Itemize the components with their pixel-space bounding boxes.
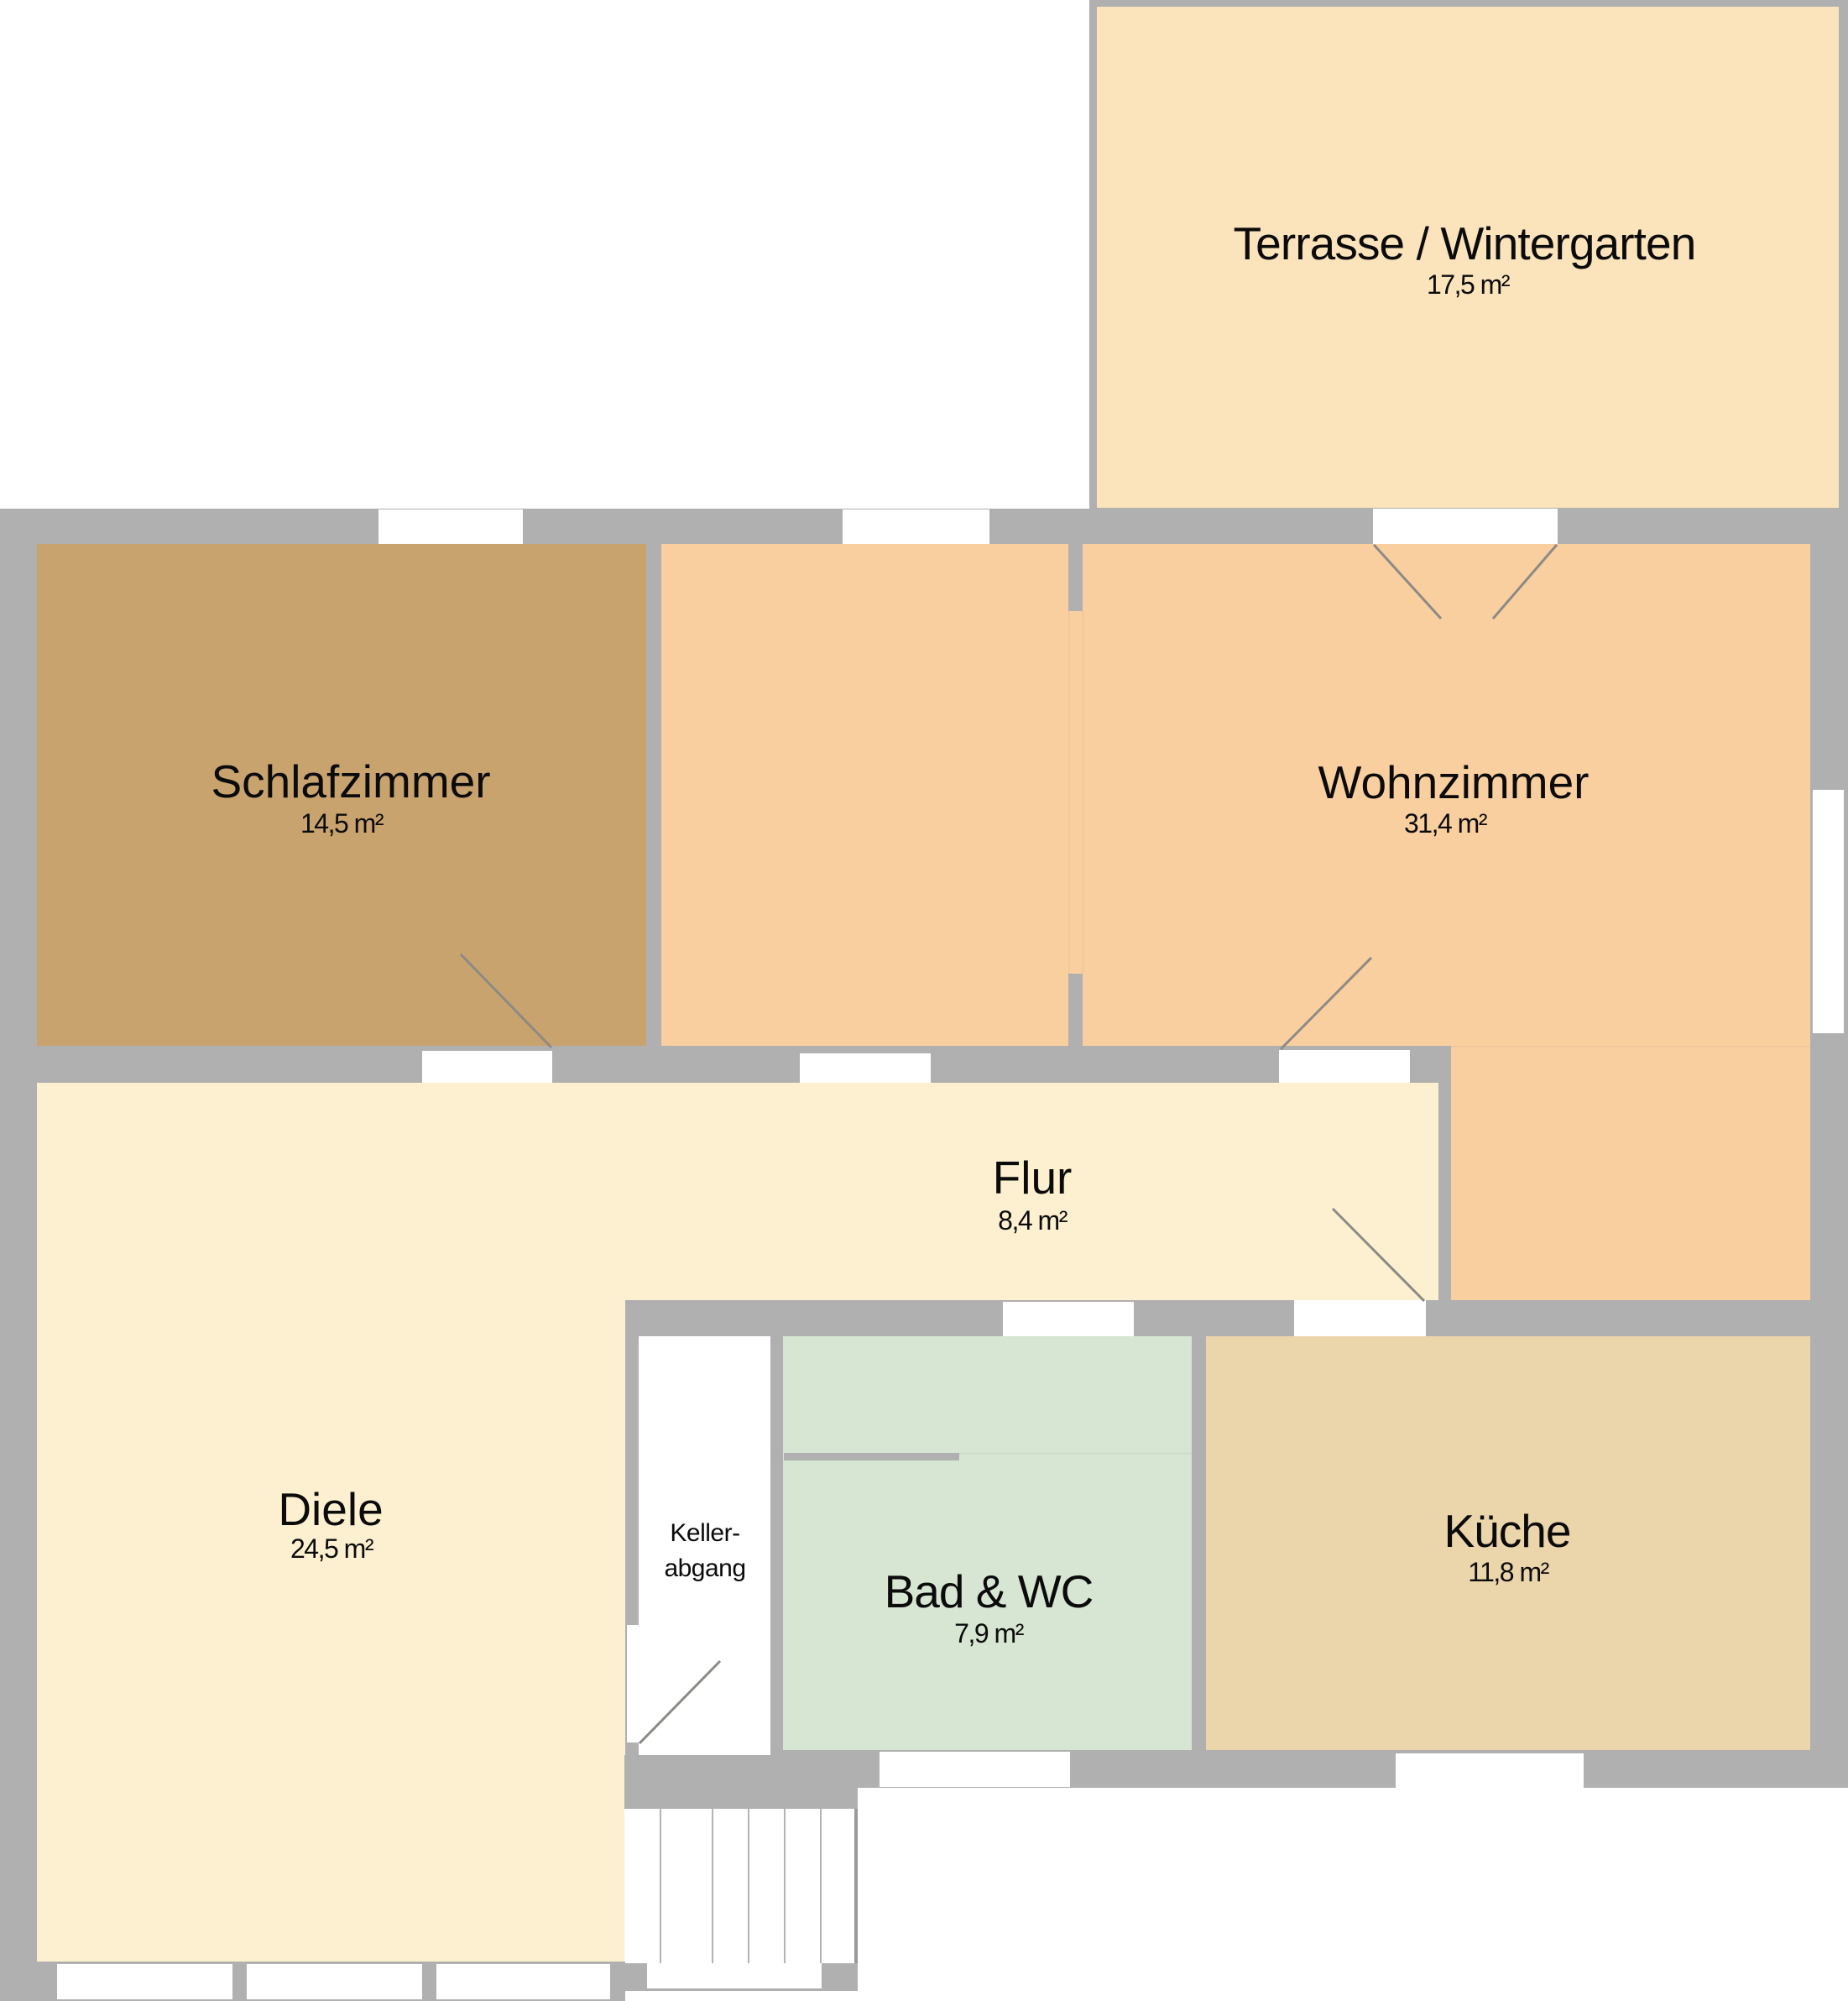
svg-text:24,5 m²: 24,5 m² [290,1533,374,1564]
svg-text:Diele: Diele [278,1483,383,1535]
svg-text:14,5 m²: 14,5 m² [300,808,384,839]
svg-text:7,9 m²: 7,9 m² [954,1618,1025,1648]
svg-text:Flur: Flur [993,1152,1073,1204]
svg-text:Schlafzimmer: Schlafzimmer [211,755,490,807]
svg-text:Keller-: Keller- [670,1519,739,1547]
svg-text:31,4 m²: 31,4 m² [1404,808,1488,839]
svg-text:8,4 m²: 8,4 m² [998,1205,1068,1236]
svg-text:Bad & WC: Bad & WC [885,1565,1094,1617]
svg-text:abgang: abgang [664,1554,745,1582]
svg-text:Küche: Küche [1444,1505,1571,1557]
svg-text:17,5 m²: 17,5 m² [1427,269,1511,300]
svg-text:Terrasse / Wintergarten: Terrasse / Wintergarten [1234,217,1696,269]
svg-text:11,8 m²: 11,8 m² [1468,1557,1549,1587]
svg-text:Wohnzimmer: Wohnzimmer [1318,756,1590,808]
